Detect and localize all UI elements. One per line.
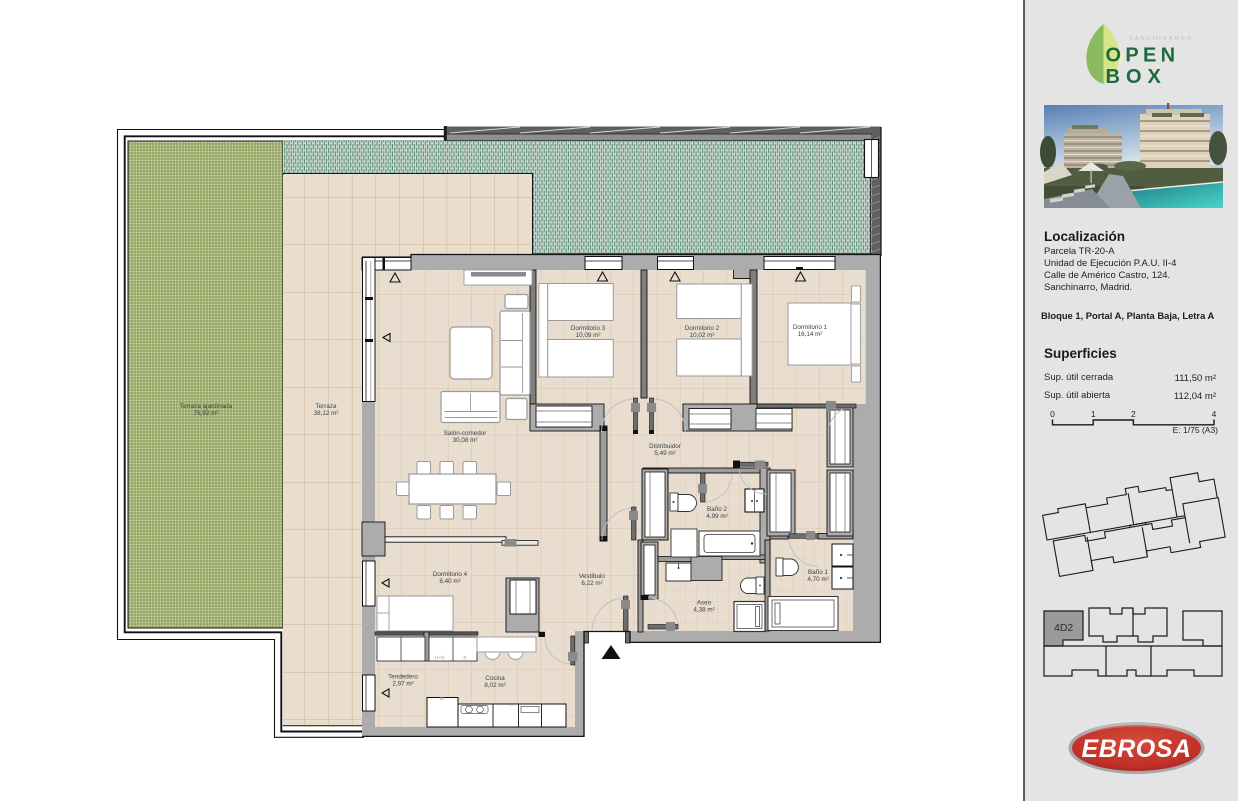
svg-text:0: 0 [1050,409,1055,419]
svg-text:Dormitorio 2: Dormitorio 2 [685,325,720,332]
svg-text:4D2: 4D2 [1054,622,1073,634]
svg-text:111,50 m²: 111,50 m² [1175,373,1216,384]
svg-text:16,14 m²: 16,14 m² [798,331,823,338]
svg-text:Distribuidor: Distribuidor [649,443,681,450]
svg-text:H+lO: H+lO [435,655,445,660]
svg-text:Terraza ajardinada: Terraza ajardinada [180,403,233,410]
svg-text:Localización: Localización [1044,229,1125,244]
svg-text:6,22 m²: 6,22 m² [581,580,602,587]
svg-text:2,97 m²: 2,97 m² [392,681,413,688]
svg-text:OPEN: OPEN [1106,45,1180,67]
svg-text:Baño 2: Baño 2 [707,506,727,513]
svg-text:2: 2 [1131,409,1136,419]
svg-text:1: 1 [1091,409,1096,419]
svg-text:75,92 m²: 75,92 m² [194,410,219,417]
svg-text:4,38 m²: 4,38 m² [693,607,714,614]
svg-text:8,02 m²: 8,02 m² [484,682,505,689]
svg-text:38,12 m²: 38,12 m² [314,410,339,417]
svg-text:10,02 m²: 10,02 m² [690,332,715,339]
svg-text:Dormitorio 1: Dormitorio 1 [793,324,828,331]
svg-text:4,99 m²: 4,99 m² [706,513,727,520]
svg-text:30,08 m²: 30,08 m² [453,437,478,444]
svg-text:Dormitorio 3: Dormitorio 3 [571,325,606,332]
svg-text:112,04 m²: 112,04 m² [1174,391,1216,402]
svg-text:Sup. útil abierta: Sup. útil abierta [1044,390,1111,401]
svg-text:4,70 m²: 4,70 m² [807,576,828,583]
svg-text:8,40 m²: 8,40 m² [439,578,460,585]
svg-text:Superficies: Superficies [1044,346,1117,361]
svg-text:83: 83 [440,696,445,701]
svg-text:Bloque 1, Portal A, Planta Baj: Bloque 1, Portal A, Planta Baja, Letra A [1041,310,1215,321]
svg-text:Calle de Américo Castro, 124.: Calle de Américo Castro, 124. [1044,270,1170,281]
svg-text:Vestíbulo: Vestíbulo [579,573,605,580]
svg-text:Tendedero: Tendedero [388,674,418,681]
svg-text:Baño 1: Baño 1 [808,569,828,576]
svg-text:Terraza: Terraza [316,403,337,410]
svg-text:10,09 m²: 10,09 m² [576,332,601,339]
svg-text:Aseo: Aseo [697,600,712,607]
svg-text:EBROSA: EBROSA [1082,735,1192,763]
svg-text:4: 4 [1212,409,1217,419]
svg-text:Salón-comedor: Salón-comedor [444,430,487,437]
svg-text:BOX: BOX [1106,66,1167,88]
svg-text:Unidad de Ejecución P.A.U. II-: Unidad de Ejecución P.A.U. II-4 [1044,258,1176,269]
svg-text:Sup. útil cerrada: Sup. útil cerrada [1044,372,1114,383]
svg-text:SANCHINARRO: SANCHINARRO [1129,36,1193,42]
svg-text:Cocina: Cocina [485,675,505,682]
svg-text:E: 1/75 (A3): E: 1/75 (A3) [1173,425,1219,435]
svg-text:Sanchinarro, Madrid.: Sanchinarro, Madrid. [1044,282,1132,293]
svg-text:Parcela TR-20-A: Parcela TR-20-A [1044,246,1115,257]
svg-text:Dormitorio 4: Dormitorio 4 [433,571,468,578]
svg-text:5,49 m²: 5,49 m² [654,450,675,457]
svg-text:TxT: TxT [508,702,516,707]
svg-text:D: D [463,655,466,660]
